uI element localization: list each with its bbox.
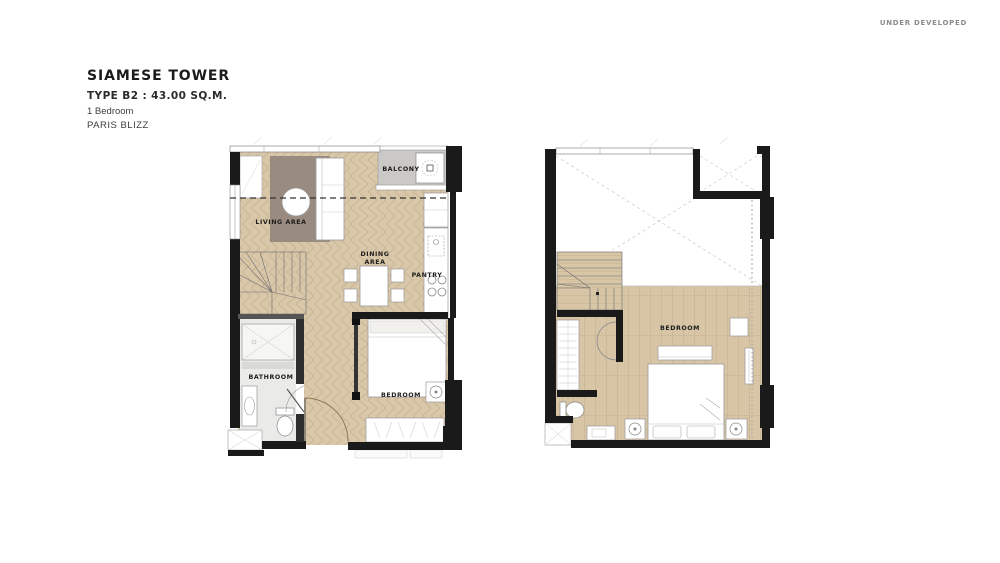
living-area-label: LIVING AREA: [255, 219, 306, 226]
bedroom-label-upper: BEDROOM: [660, 325, 700, 332]
balcony-label: BALCONY: [382, 166, 419, 173]
toilet: [276, 408, 294, 436]
balcony-sliding-door: [376, 185, 448, 190]
bed: [648, 364, 724, 440]
bedroom-label-lower: BEDROOM: [381, 392, 421, 399]
roof-hint-lines: [254, 137, 382, 144]
exterior-neighbor-hint: [355, 450, 442, 458]
coffee-table: [282, 188, 310, 216]
ac-condenser-unit: [416, 153, 444, 183]
dining-table: [360, 266, 388, 306]
wardrobe: [366, 418, 444, 442]
project-title: SIAMESE TOWER: [87, 68, 230, 84]
corner-shaft: [545, 423, 571, 445]
unit-type: TYPE B2 : 43.00 SQ.M.: [87, 90, 230, 102]
roof-hint-lines: [580, 137, 728, 146]
void-balcony-below: [700, 156, 757, 192]
curtain: [240, 156, 262, 198]
bedroom-count: 1 Bedroom: [87, 106, 230, 117]
bathroom-vanity-sink: [242, 386, 257, 426]
vanity-sink: [587, 426, 615, 440]
sofa: [316, 158, 344, 240]
watermark-under-developed: UNDER DEVELOPED: [880, 19, 967, 27]
finish-scheme: PARIS BLIZZ: [87, 120, 230, 131]
bedside-table-lamp: [426, 382, 446, 402]
lower-floor-plan: BALCONY LIVING AREA DINING AREA PANTRY B…: [224, 136, 468, 462]
bathroom-label: BATHROOM: [249, 374, 294, 381]
shower-bath: [242, 324, 294, 360]
exterior-shaft: [228, 430, 264, 456]
bathroom-threshold: [242, 362, 294, 369]
dining-area-label-line1: DINING: [361, 251, 390, 258]
unit-info-header: SIAMESE TOWER TYPE B2 : 43.00 SQ.M. 1 Be…: [87, 68, 230, 131]
pantry-label: PANTRY: [412, 272, 443, 279]
wardrobe: [557, 320, 579, 390]
stool: [730, 318, 748, 336]
bedside-table-lamp-left: [625, 419, 645, 439]
dining-area-label-line2: AREA: [364, 259, 385, 266]
bedside-table-lamp-right: [726, 419, 747, 439]
upper-floor-plan: BEDROOM: [530, 136, 780, 462]
staircase: [557, 252, 622, 310]
bench: [658, 346, 712, 360]
